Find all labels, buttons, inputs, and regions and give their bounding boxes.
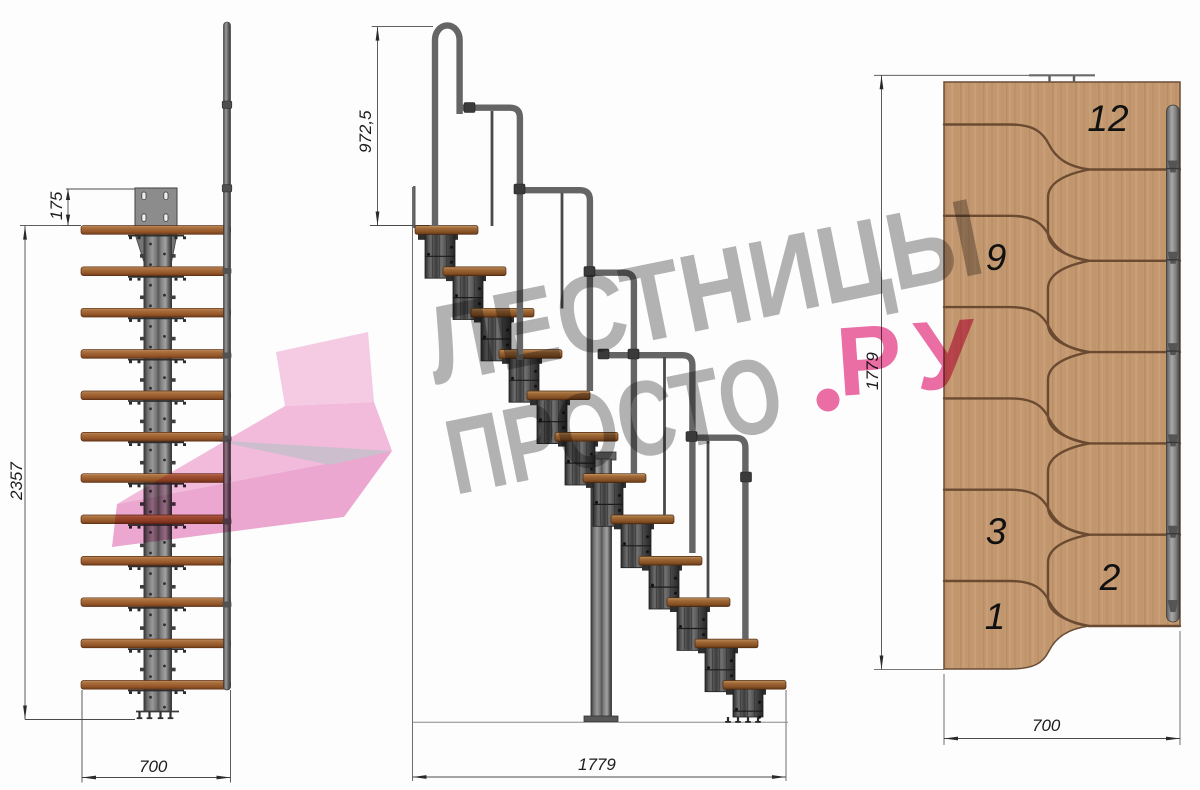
svg-text:РУ: РУ [833, 297, 993, 417]
